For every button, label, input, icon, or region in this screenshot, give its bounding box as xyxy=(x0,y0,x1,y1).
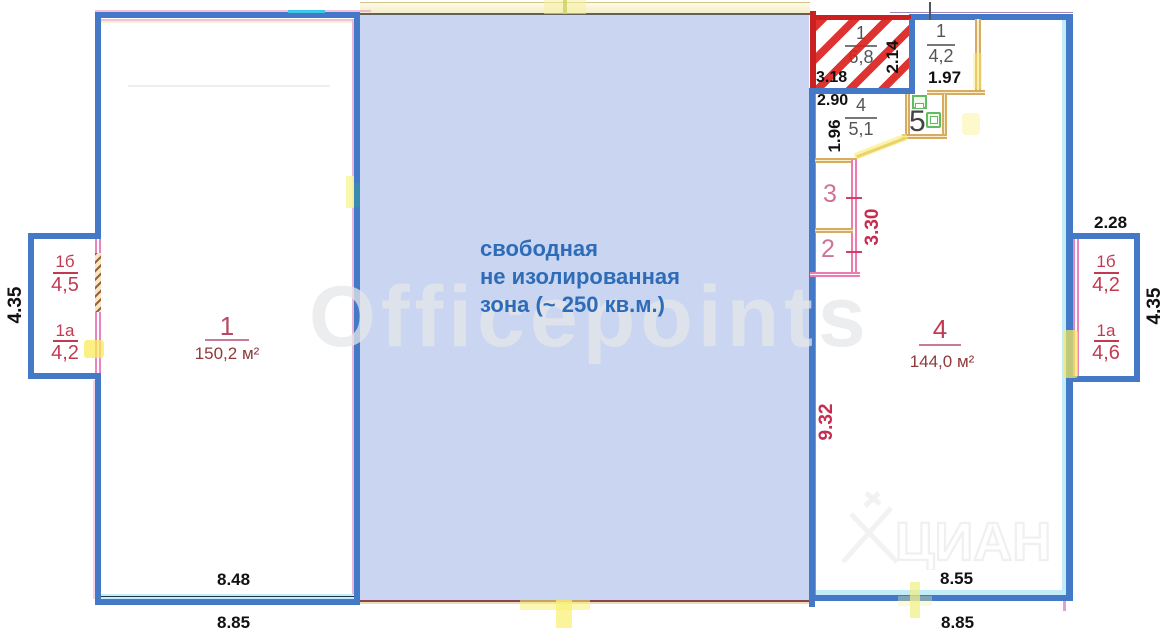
svg-text:ЦИАН: ЦИАН xyxy=(895,512,1050,570)
